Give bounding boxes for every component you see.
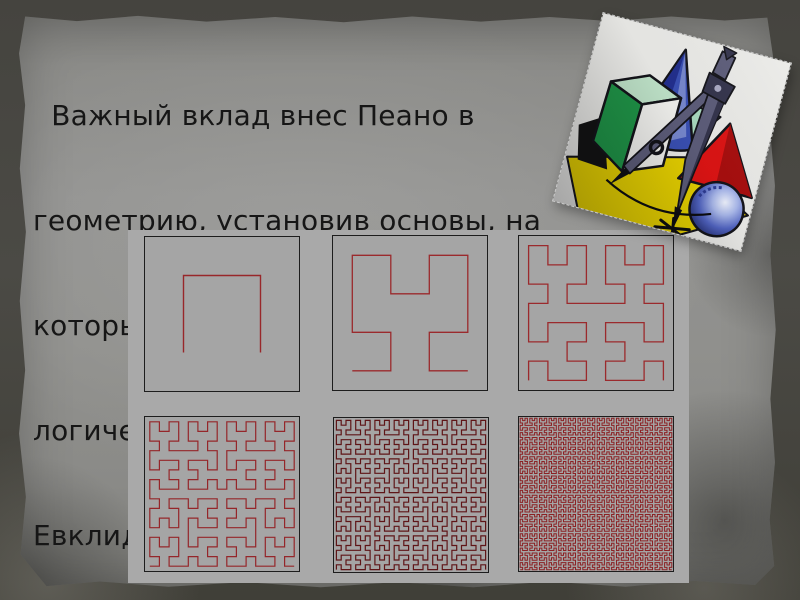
peano-curve-iteration-6: [518, 416, 674, 572]
peano-curve-iteration-3: [518, 235, 674, 391]
peano-curve-iteration-5: [333, 417, 489, 573]
peano-curves-panel: [128, 230, 689, 583]
peano-curve-svg: [519, 236, 673, 390]
peano-curve-iteration-4: [144, 416, 300, 572]
peano-curve-svg: [145, 417, 299, 571]
peano-curve-svg: [145, 237, 299, 391]
peano-curve-svg: [334, 418, 488, 572]
text-line: Важный вклад внес Пеано в: [33, 98, 557, 133]
peano-curve-svg: [519, 417, 673, 571]
peano-curve-iteration-2: [332, 235, 488, 391]
peano-curve-iteration-1: [144, 236, 300, 392]
peano-curve-svg: [333, 236, 487, 390]
presentation-slide: Важный вклад внес Пеано в геометрию, уст…: [0, 0, 800, 600]
